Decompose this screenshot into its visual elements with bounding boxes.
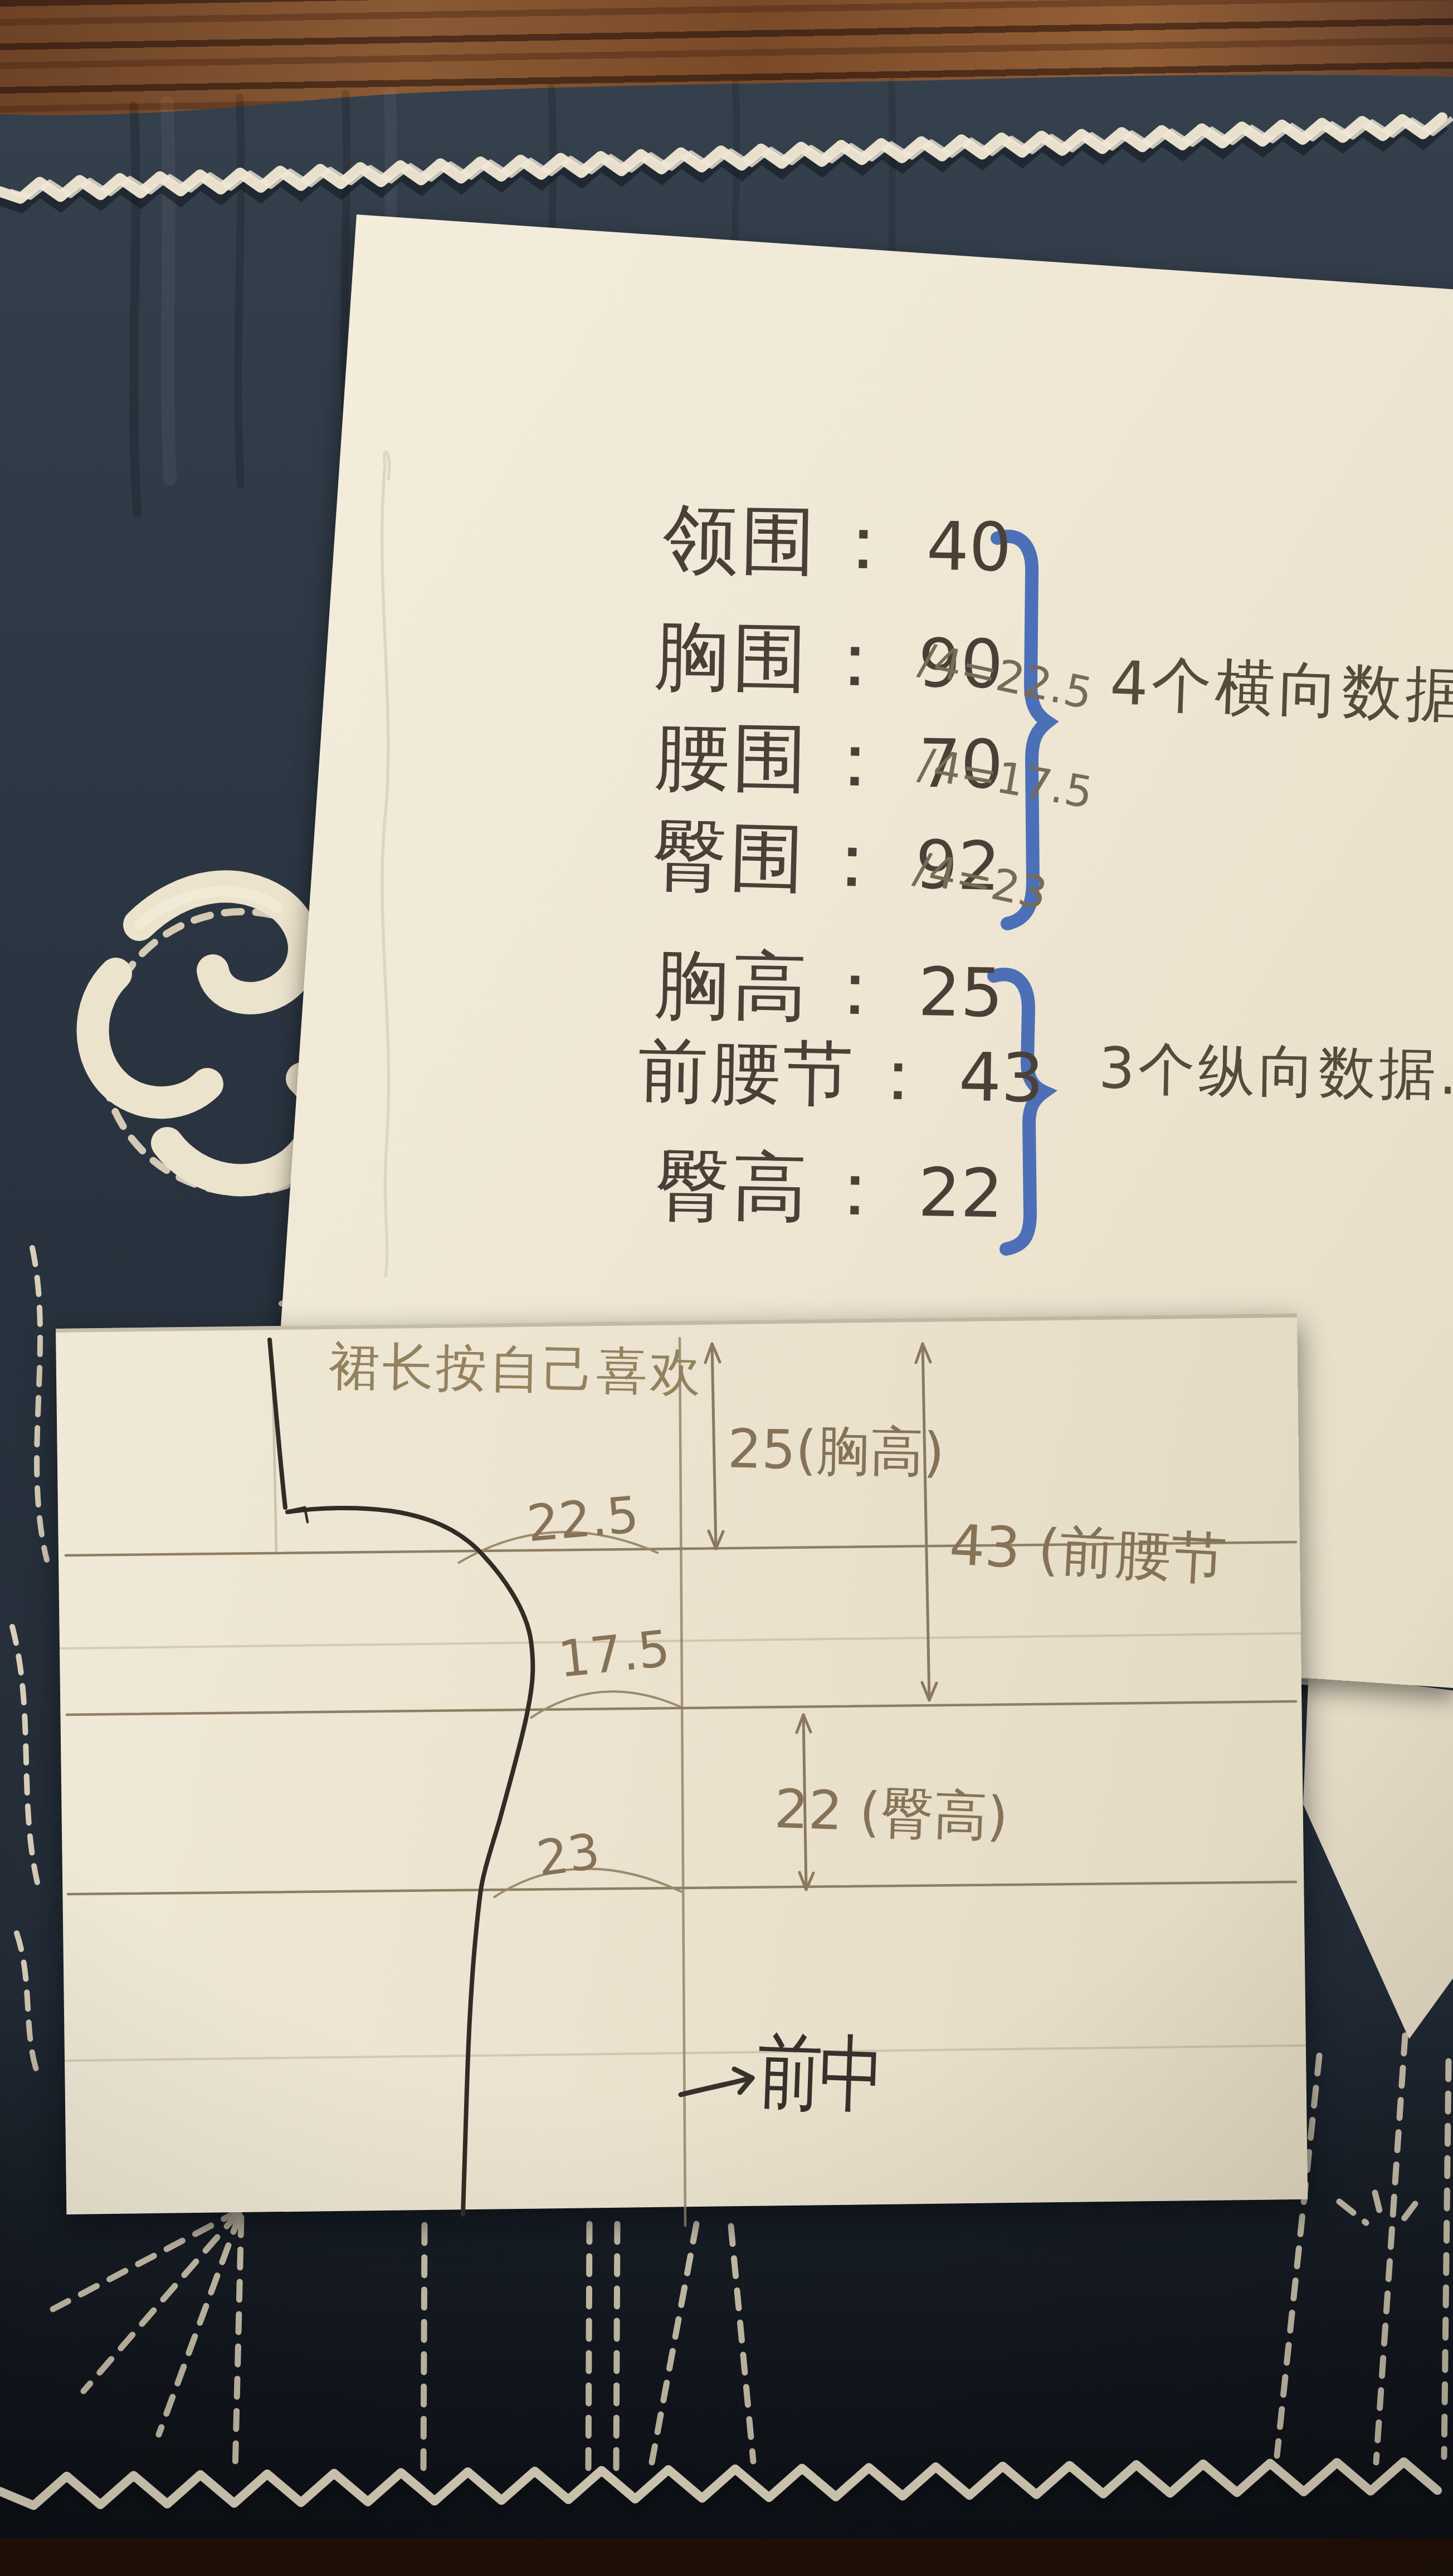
bust-width-label: 22.5: [525, 1489, 640, 1549]
front-body-curve: [287, 1508, 533, 2214]
notes-line-bust-height: 胸高：25: [654, 947, 1004, 1028]
photo-scene: 领围：40 胸围：90 /4=22.5 腰围：70 /4=17.5 臀围：92 …: [0, 0, 1453, 2576]
notes-line-neck: 领围：40: [662, 501, 1012, 583]
waist-label: 腰围: [654, 713, 811, 803]
pattern-pen-curve: [270, 1340, 533, 2214]
center-front-label: 前中: [756, 2029, 882, 2117]
sewing-thread: [382, 452, 389, 1277]
hip-height-label: 臀高: [654, 1141, 811, 1232]
front-waist-value: 43: [958, 1038, 1045, 1118]
front-waist-arrow: [916, 1344, 937, 1700]
ink-layer: [0, 0, 1453, 2576]
hip-label: 臀围: [651, 811, 808, 902]
hip-height-value: 22: [918, 1154, 1004, 1233]
front-waist-label: 前腰节: [637, 1030, 856, 1115]
pattern-top-note: 裙长按自己喜欢: [328, 1340, 704, 1398]
center-front-arrow: [681, 2069, 752, 2095]
neck-label: 领围: [662, 495, 819, 586]
hip-height-dim-label: 22 (臀高): [773, 1782, 1009, 1844]
front-waist-dim-label: 43 (前腰节: [948, 1517, 1228, 1587]
notes-line-hip-height: 臀高：22: [654, 1148, 1004, 1229]
shoulder-line: [270, 1340, 285, 1507]
notes-line-front-waist: 前腰节：43: [637, 1036, 1045, 1113]
hip-width-label: 23: [534, 1827, 602, 1884]
bust-height-label: 胸高: [654, 941, 811, 1031]
bust-label: 胸围: [654, 612, 811, 702]
bust-height-arrow: [705, 1344, 723, 1549]
group-label-vertical: 3个纵向数据.: [1098, 1040, 1453, 1102]
bust-height-value: 25: [918, 953, 1004, 1032]
waist-width-label: 17.5: [556, 1623, 672, 1685]
waist-arc: [530, 1691, 681, 1718]
group-label-horizontal: 4个横向数据: [1109, 653, 1453, 725]
bust-height-dim-label: 25(胸高): [727, 1422, 945, 1480]
neck-value: 40: [926, 508, 1012, 587]
